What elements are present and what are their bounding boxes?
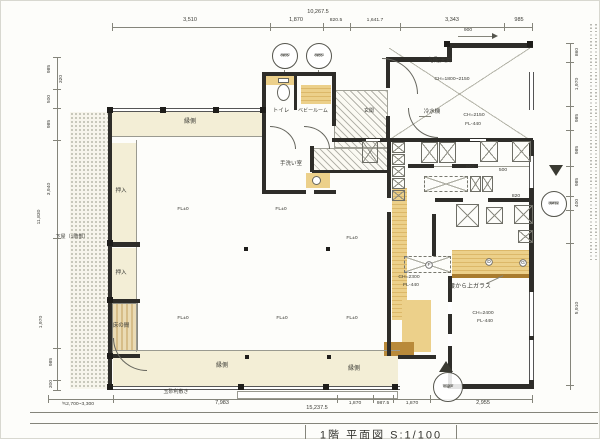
dimension-label: 1,870 <box>289 17 303 23</box>
dimension-label: 860 <box>575 48 580 56</box>
annotation-label: CH=2300 <box>398 275 419 280</box>
dimension-label: 5,910 <box>575 302 580 314</box>
room-label: 床の間 <box>113 323 130 329</box>
dimension-label: 1,870 <box>349 401 361 406</box>
dimension-label: 985 <box>49 358 54 366</box>
room-label: 縁側 <box>216 363 228 369</box>
dimension-label: 820.5 <box>330 18 342 23</box>
dimension-label: 985 <box>575 178 580 186</box>
dimension-label: 400 <box>575 199 580 207</box>
dimension-label: 500 <box>499 168 507 173</box>
dimension-label: 320 <box>59 75 64 83</box>
window-tag: AW030855 <box>306 43 332 69</box>
dimension-label: 1,970 <box>575 78 580 90</box>
annotation-label: FL-440 <box>465 122 481 127</box>
dimension-label: 2,955 <box>476 400 490 406</box>
room-label: 押入 <box>115 270 126 276</box>
equipment-letter: D <box>485 258 492 265</box>
dimension-label: 985 <box>514 17 523 23</box>
room-label: 縁側 <box>348 366 360 372</box>
tag-text: 0855 <box>315 54 323 59</box>
room-label: 玉砂利敷き <box>164 390 189 395</box>
tag-text: 0841E <box>549 202 559 207</box>
annotation-label: CH=1800~2150 <box>434 77 469 82</box>
room-label: 腰から上ガラス <box>449 284 491 290</box>
dimension-label: 1,641.7 <box>367 18 384 23</box>
dimension-label: 1,870 <box>406 401 418 406</box>
dimension-label: 3,343 <box>445 17 459 23</box>
room-label: 縁側 <box>184 119 196 125</box>
room-label: 下屋（1階部） <box>56 235 89 240</box>
dimension-label: 3,940 <box>47 183 52 195</box>
annotation-label: FL±0 <box>346 316 357 321</box>
dimension-label: 10,267.5 <box>307 9 328 15</box>
annotation-label: CH=2150 <box>463 113 484 118</box>
dimension-label: 985 <box>47 65 52 73</box>
annotation-label: FL±0 <box>177 207 188 212</box>
annotation-label: FL-440 <box>477 319 493 324</box>
room-label: 押入 <box>115 188 126 194</box>
dimension-label: 500 <box>47 95 52 103</box>
room-label: 冷水機 <box>424 109 441 115</box>
dimension-label: 1,970 <box>39 316 44 328</box>
annotation-label: FL±0 <box>276 316 287 321</box>
equipment-letter: F <box>425 261 432 268</box>
room-label: ベビールーム <box>298 109 328 114</box>
door-tag: 30-31引違戸 <box>433 372 463 402</box>
dimension-label: 900 <box>464 28 472 33</box>
window-tag: AW020841E <box>541 191 567 217</box>
annotation-label: FL-440 <box>403 283 419 288</box>
drawing-title: 1階 平面図 S:1/100 <box>320 431 442 439</box>
annotation-label: FL±0 <box>275 207 286 212</box>
dimension-label: 985 <box>575 146 580 154</box>
dimension-label: 300 <box>49 380 54 388</box>
tag-text: 0805 <box>281 54 289 59</box>
annotation-label: FL±0 <box>177 316 188 321</box>
dimension-label: 900 <box>466 165 474 170</box>
room-label: 勾配天井 <box>428 58 452 64</box>
dimension-label: 987.5 <box>377 401 389 406</box>
dimension-label: 11,830 <box>37 210 42 225</box>
annotation-label: FL±0 <box>346 236 357 241</box>
floor-plan-sheet: 縁側トイレベビールーム玄関手洗い室勾配天井冷水機押入押入床の間下屋（1階部）縁側… <box>0 0 600 439</box>
room-label: 手洗い室 <box>280 161 302 167</box>
dimension-label: 985 <box>47 120 52 128</box>
labels-layer: 縁側トイレベビールーム玄関手洗い室勾配天井冷水機押入押入床の間下屋（1階部）縁側… <box>0 0 600 439</box>
dimension-label: 820 <box>512 194 520 199</box>
dimension-label: 3,510 <box>183 17 197 23</box>
equipment-letter: G <box>519 259 526 266</box>
dimension-label: 7,983 <box>215 400 229 406</box>
annotation-label: CH=2400 <box>472 311 493 316</box>
window-tag: AW020805 <box>272 43 298 69</box>
room-label: トイレ <box>273 108 290 114</box>
tag-text: 引違戸 <box>443 385 454 390</box>
dimension-label: 985 <box>575 114 580 122</box>
dimension-label: ≒2,700~3,300 <box>62 402 94 407</box>
room-label: 玄関 <box>364 109 374 114</box>
dimension-label: 15,237.5 <box>306 405 327 411</box>
